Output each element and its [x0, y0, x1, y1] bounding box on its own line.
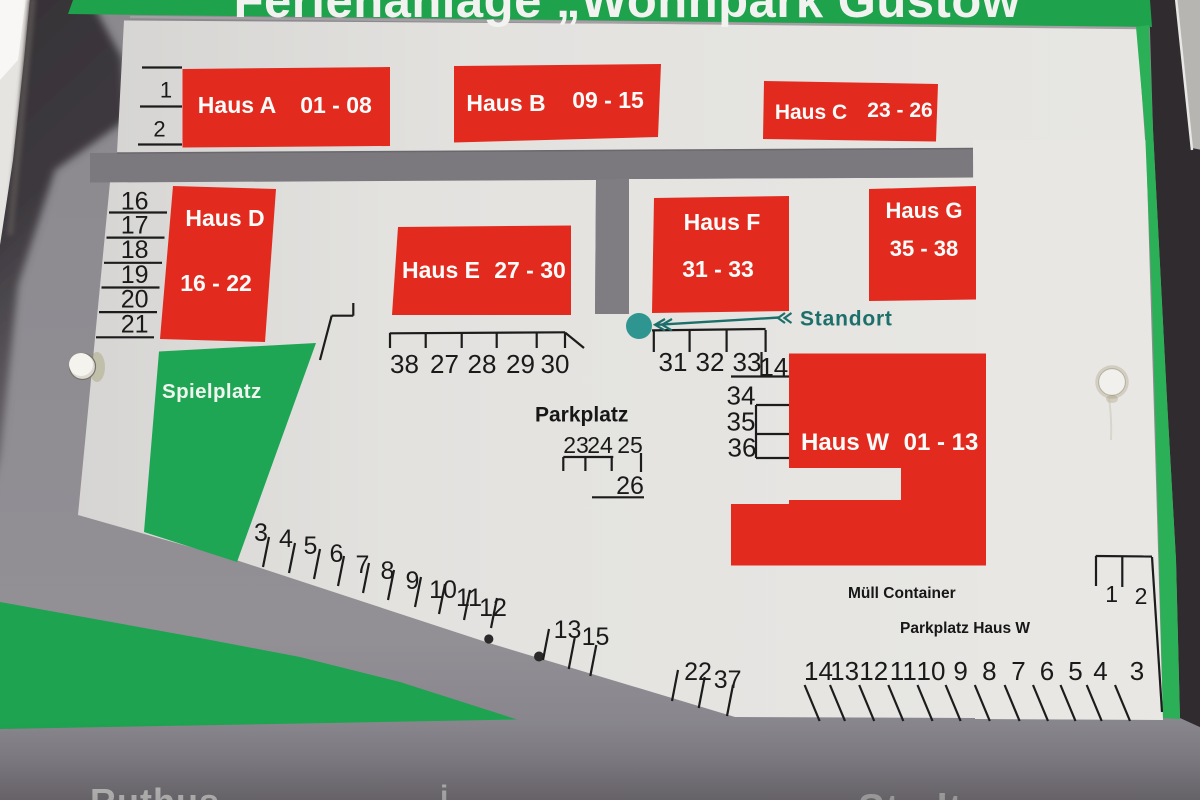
- svg-text:33: 33: [733, 347, 762, 377]
- svg-text:31: 31: [659, 347, 688, 377]
- svg-text:14: 14: [804, 656, 833, 686]
- svg-text:2: 2: [1135, 583, 1148, 609]
- svg-text:Standort: Standort: [800, 308, 893, 331]
- svg-text:Parkplatz Haus W: Parkplatz Haus W: [900, 620, 1030, 637]
- svg-text:Ferienanlage „Wohnpark Gustow: Ferienanlage „Wohnpark Gustow: [234, 0, 1021, 28]
- svg-text:22: 22: [684, 658, 712, 686]
- svg-text:11: 11: [890, 656, 917, 686]
- svg-text:10: 10: [917, 656, 946, 686]
- svg-text:7: 7: [1011, 656, 1025, 686]
- svg-text:6: 6: [1040, 656, 1054, 686]
- svg-text:38: 38: [390, 349, 419, 379]
- svg-text:Haus D: Haus D: [185, 205, 264, 231]
- svg-text:Müll Container: Müll Container: [848, 585, 956, 602]
- svg-text:Parkplatz: Parkplatz: [535, 404, 628, 427]
- svg-text:30: 30: [541, 349, 570, 379]
- svg-text:3: 3: [254, 519, 268, 547]
- svg-text:12: 12: [859, 656, 888, 686]
- svg-text:8: 8: [982, 656, 996, 686]
- svg-text:32: 32: [696, 347, 725, 377]
- svg-text:27 - 30: 27 - 30: [494, 257, 566, 283]
- svg-text:28: 28: [468, 349, 497, 379]
- svg-text:27: 27: [430, 349, 459, 379]
- svg-text:23 - 26: 23 - 26: [867, 99, 932, 122]
- svg-text:Haus G: Haus G: [885, 198, 962, 223]
- svg-text:3: 3: [1130, 656, 1144, 686]
- svg-text:13: 13: [554, 616, 582, 644]
- svg-text:23: 23: [563, 432, 589, 458]
- svg-text:Haus B: Haus B: [466, 90, 545, 116]
- svg-text:35 - 38: 35 - 38: [890, 236, 959, 261]
- svg-text:Haus W: Haus W: [801, 429, 889, 456]
- svg-text:5: 5: [304, 532, 318, 560]
- svg-text:1: 1: [160, 78, 172, 103]
- svg-text:13: 13: [830, 656, 859, 686]
- svg-text:01 - 13: 01 - 13: [904, 429, 979, 456]
- svg-text:37: 37: [714, 666, 742, 694]
- svg-text:Haus F: Haus F: [684, 209, 761, 235]
- svg-text:Spielplatz: Spielplatz: [162, 380, 262, 403]
- svg-text:Haus A: Haus A: [198, 92, 276, 118]
- svg-text:Haus C: Haus C: [775, 101, 847, 124]
- svg-text:1: 1: [1105, 581, 1118, 607]
- svg-text:36: 36: [728, 433, 757, 463]
- svg-text:21: 21: [121, 311, 149, 339]
- svg-text:4: 4: [1093, 656, 1107, 686]
- svg-text:01 - 08: 01 - 08: [300, 92, 372, 118]
- svg-text:20: 20: [121, 286, 149, 314]
- svg-text:24: 24: [587, 432, 613, 458]
- svg-text:26: 26: [616, 472, 644, 500]
- svg-text:2: 2: [153, 117, 165, 142]
- svg-text:5: 5: [1068, 656, 1082, 686]
- svg-text:16 - 22: 16 - 22: [180, 270, 252, 296]
- svg-text:31 - 33: 31 - 33: [682, 256, 754, 282]
- svg-text:18: 18: [121, 236, 149, 264]
- svg-text:25: 25: [617, 432, 643, 458]
- svg-text:Haus E: Haus E: [402, 257, 480, 283]
- svg-text:29: 29: [506, 349, 535, 379]
- svg-text:09 - 15: 09 - 15: [572, 87, 644, 113]
- svg-text:4: 4: [279, 525, 293, 553]
- svg-text:9: 9: [953, 656, 967, 686]
